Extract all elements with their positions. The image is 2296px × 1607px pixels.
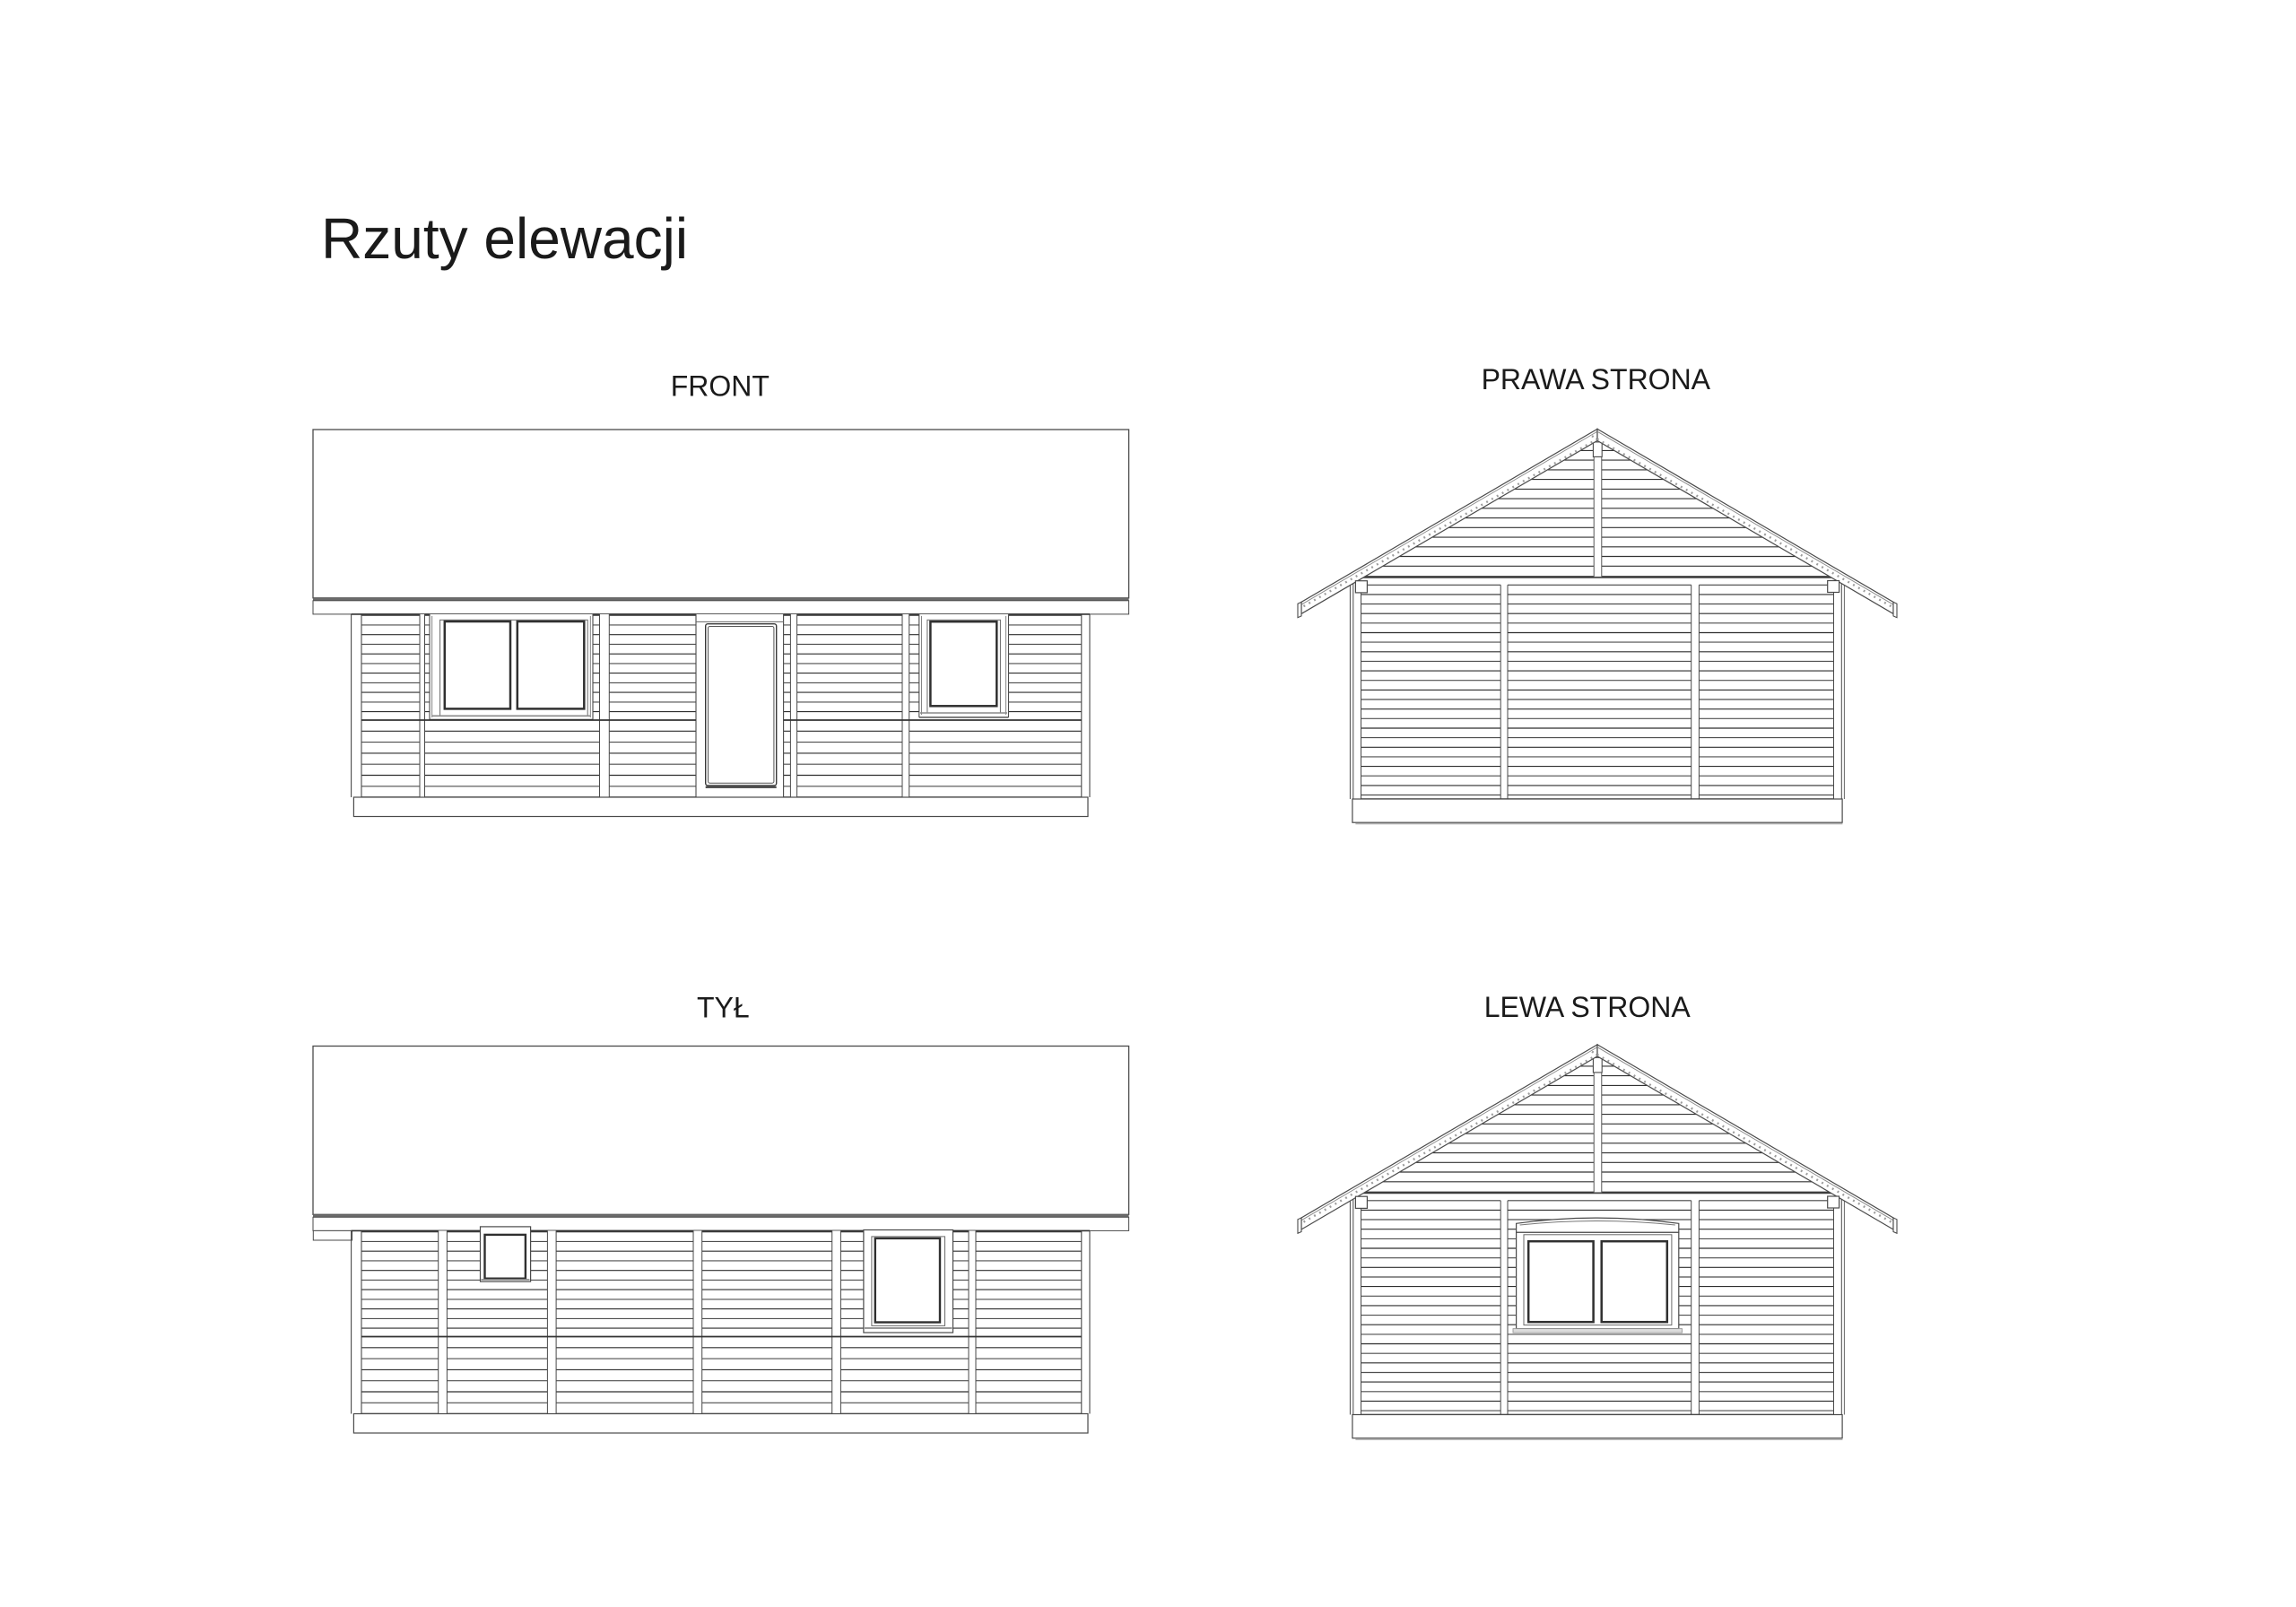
svg-text:TYŁ: TYŁ bbox=[697, 992, 750, 1024]
svg-text:LEWA STRONA: LEWA STRONA bbox=[1484, 991, 1692, 1023]
svg-text:Rzuty elewacji: Rzuty elewacji bbox=[321, 206, 688, 271]
svg-text:FRONT: FRONT bbox=[671, 369, 770, 402]
svg-text:PRAWA STRONA: PRAWA STRONA bbox=[1482, 363, 1711, 395]
